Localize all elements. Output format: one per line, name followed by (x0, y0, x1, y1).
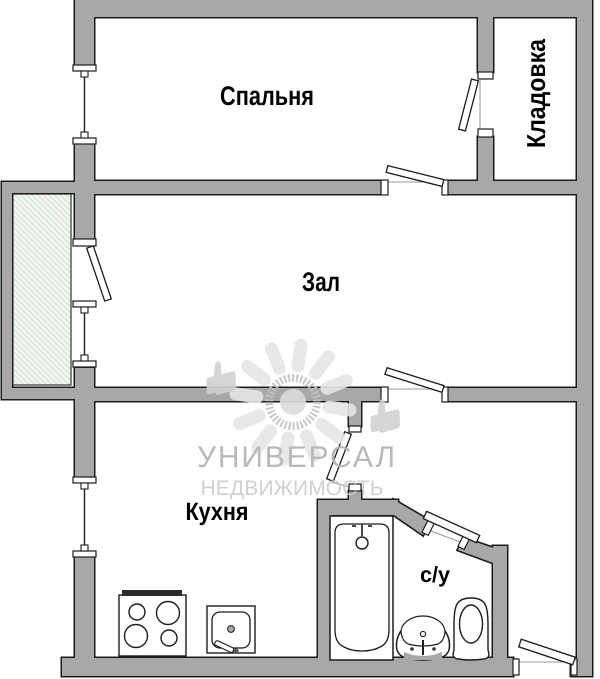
svg-text:Зал: Зал (302, 267, 340, 297)
svg-text:Спальня: Спальня (220, 81, 314, 111)
svg-text:Кухня: Кухня (186, 498, 249, 526)
svg-text:Кладовка: Кладовка (521, 39, 551, 148)
svg-text:с/у: с/у (420, 562, 451, 587)
svg-text:НЕДВИЖИМОСТЬ: НЕДВИЖИМОСТЬ (201, 477, 384, 500)
svg-text:УНИВЕРСАЛ: УНИВЕРСАЛ (197, 441, 395, 474)
